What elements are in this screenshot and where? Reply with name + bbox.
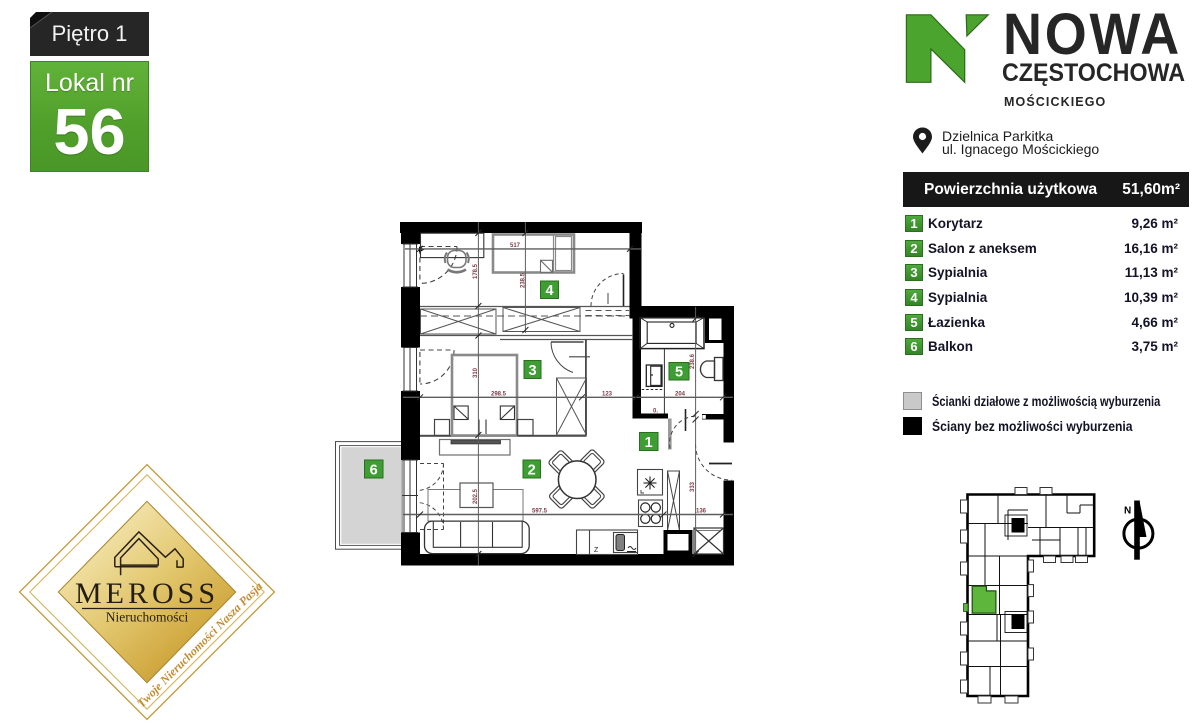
svg-text:N: N xyxy=(1124,506,1131,517)
svg-text:Z: Z xyxy=(594,547,599,554)
svg-text:298.5: 298.5 xyxy=(491,391,507,397)
svg-text:5: 5 xyxy=(675,365,683,381)
svg-text:238.5: 238.5 xyxy=(521,272,527,288)
svg-text:333: 333 xyxy=(690,481,696,492)
svg-text:310: 310 xyxy=(473,367,479,378)
svg-text:202.5: 202.5 xyxy=(473,488,479,504)
svg-text:2: 2 xyxy=(528,462,536,478)
svg-text:597.5: 597.5 xyxy=(532,509,548,515)
svg-text:6: 6 xyxy=(370,462,378,478)
svg-text:178.5: 178.5 xyxy=(473,263,479,279)
svg-text:204: 204 xyxy=(675,391,686,397)
svg-text:517: 517 xyxy=(510,243,521,249)
svg-text:3: 3 xyxy=(528,363,536,379)
svg-text:136: 136 xyxy=(696,509,707,515)
svg-text:123: 123 xyxy=(602,391,613,397)
svg-text:1: 1 xyxy=(645,435,653,451)
svg-text:4: 4 xyxy=(545,283,553,299)
svg-text:238.6: 238.6 xyxy=(690,353,696,369)
svg-text:MEROSS: MEROSS xyxy=(75,577,219,610)
svg-text:Nieruchomości: Nieruchomości xyxy=(106,610,189,625)
svg-text:0.: 0. xyxy=(653,409,658,415)
